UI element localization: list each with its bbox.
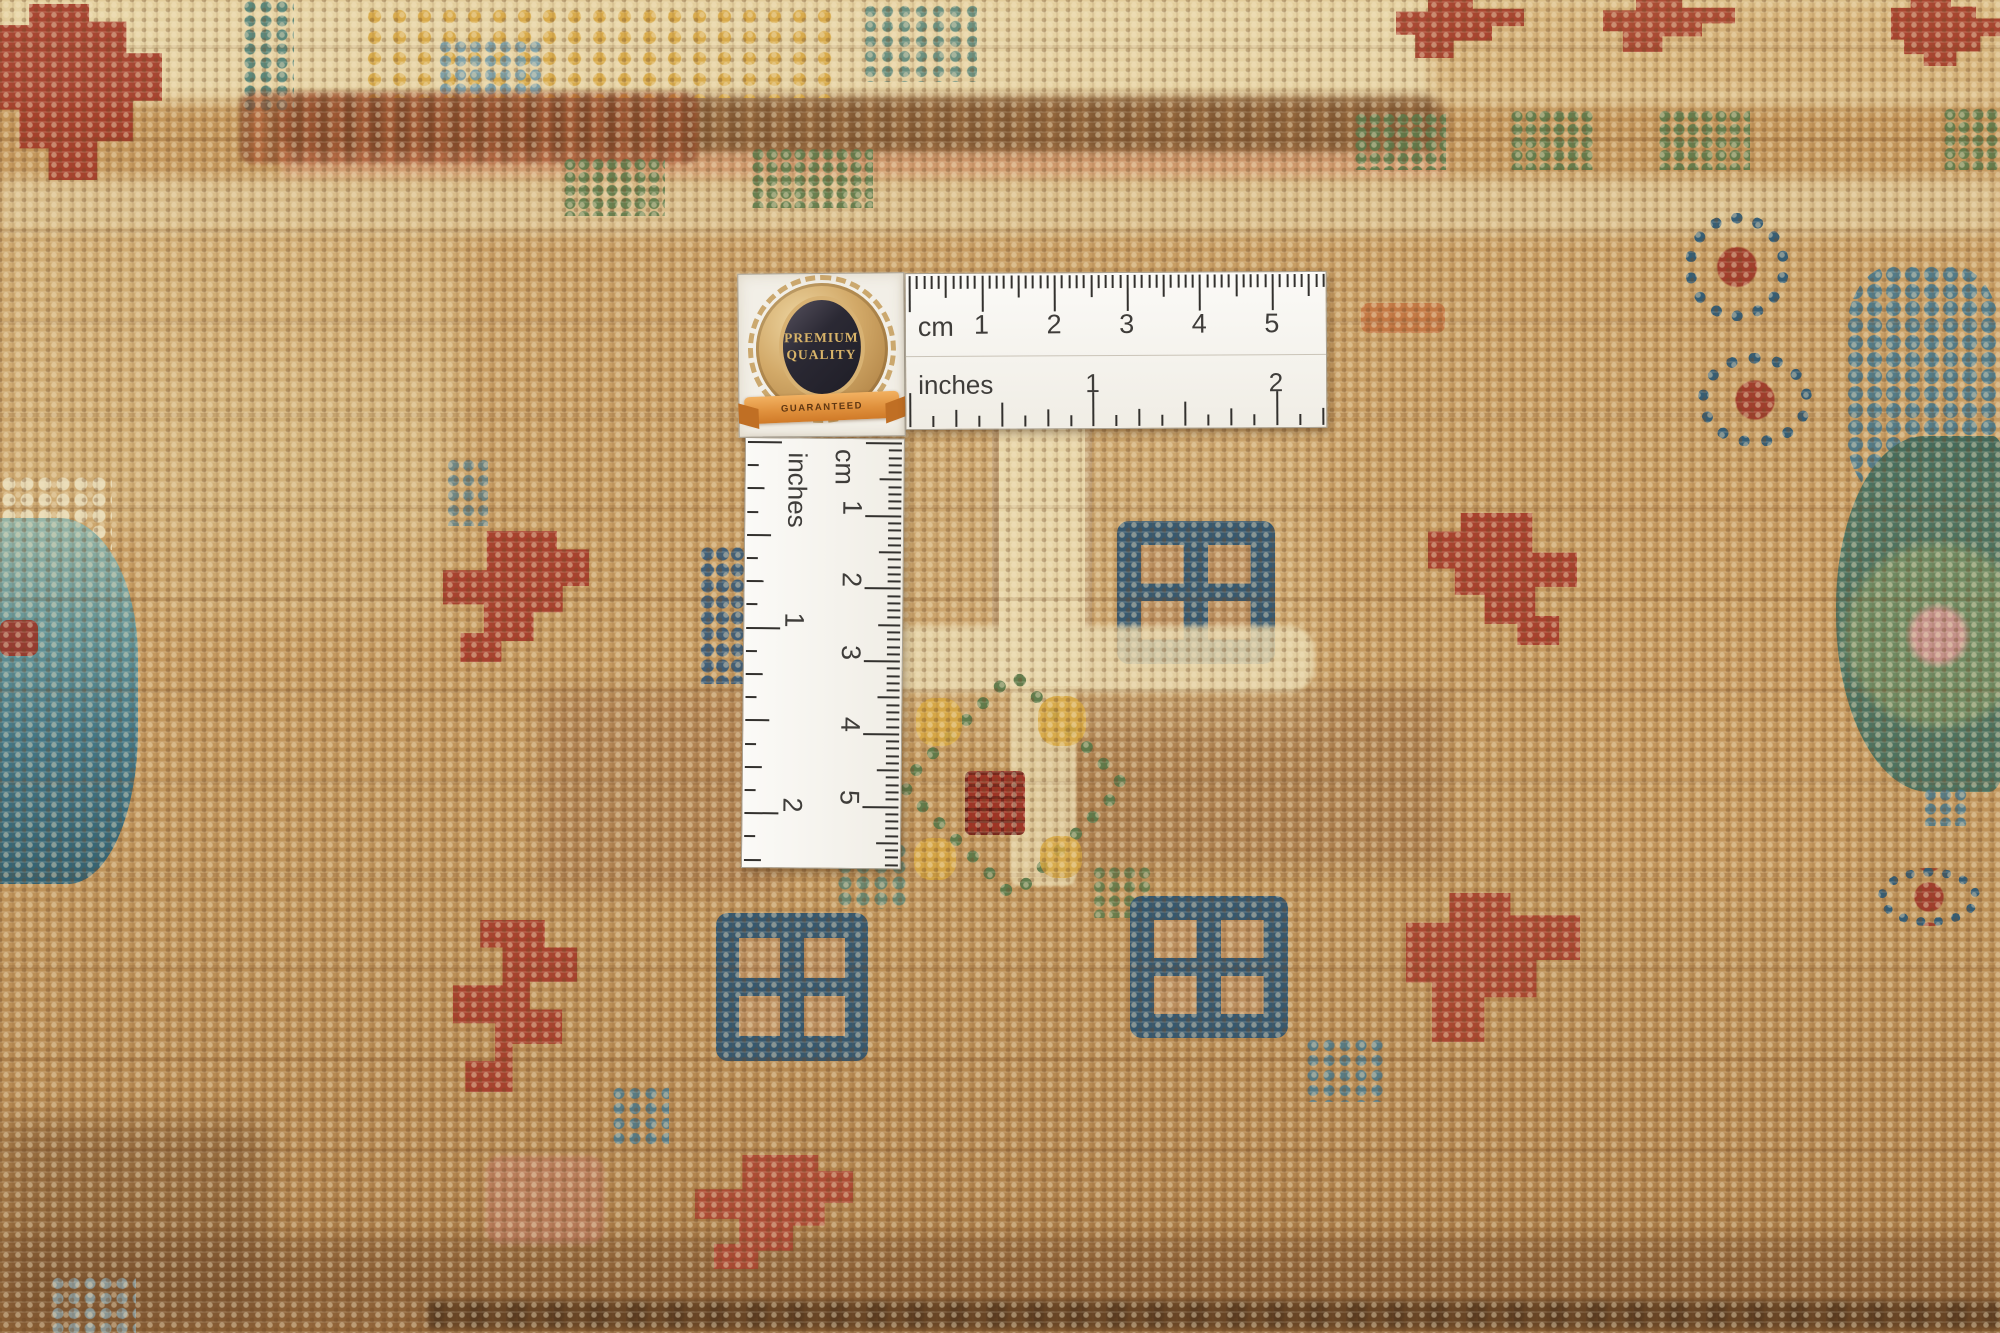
motif-blue-floret-right-1 (1685, 213, 1789, 321)
motif-blue-window-square-b (716, 913, 868, 1061)
motif-red-squiggle-bottom-left (453, 920, 577, 1092)
motif-green-sprig-5 (1658, 110, 1750, 170)
motif-flower-yellow-dot-1 (916, 698, 962, 746)
motif-teal-dots-small-2 (1305, 1038, 1383, 1102)
rug-photo: PREMIUM QUALITY GUARANTEED cm 12345 inch… (0, 0, 2000, 1333)
motif-yellow-scatter-top (362, 6, 832, 98)
motif-teal-bits-top-mid (862, 4, 977, 82)
motif-red-patch-top-left (0, 4, 162, 180)
motif-flower-yellow-dot-3 (914, 838, 956, 880)
motif-blue-strip-under-ruler (700, 546, 744, 684)
motif-flower-yellow-dot-4 (1040, 836, 1082, 878)
motif-green-sprig-6 (1943, 108, 2000, 170)
motif-red-top-right-2 (1603, 0, 1735, 52)
motif-orange-row-right (1361, 303, 1445, 333)
motif-red-arrow-bottom-right (1406, 893, 1580, 1042)
motif-dark-weave-line-bottom (428, 1301, 2000, 1329)
motif-red-top-right-3 (1891, 0, 2000, 66)
motif-green-sprig-3 (1354, 113, 1446, 170)
motif-green-sprig-4 (1510, 110, 1594, 170)
motif-flower-center-red-square (965, 771, 1025, 835)
motif-blue-window-square-c (1130, 896, 1288, 1038)
motif-green-sprig-1 (563, 158, 665, 216)
motif-cream-wings (890, 626, 1314, 692)
motif-blue-bits-top (438, 40, 542, 96)
motif-red-top-right-1 (1396, 0, 1524, 58)
motif-flower-yellow-dot-2 (1038, 696, 1086, 746)
motif-teal-medallion-left (0, 518, 138, 884)
motif-red-arrow-left (443, 531, 589, 662)
motif-green-dot-center (836, 843, 906, 909)
motif-lightblue-bottom-left (50, 1276, 136, 1333)
motif-teal-dots-small-1 (611, 1086, 669, 1146)
motif-faded-red-patch (486, 1156, 604, 1244)
motif-blue-floret-right-2 (1698, 353, 1812, 447)
motif-red-bit-left-edge (0, 620, 38, 656)
motif-red-arrow-right-mid (1428, 513, 1577, 645)
motif-green-medallion-right (1836, 436, 2000, 792)
carpet-motif-layer (0, 0, 2000, 1333)
motif-teal-dots-small-3 (446, 458, 488, 526)
motif-green-sprig-2 (751, 148, 873, 208)
motif-red-zigzag-band (240, 92, 698, 164)
motif-red-bottom-center (695, 1155, 853, 1269)
motif-blue-floret-bottom-right (1878, 868, 1980, 926)
motif-teal-bits-right-lower (1923, 788, 1969, 826)
